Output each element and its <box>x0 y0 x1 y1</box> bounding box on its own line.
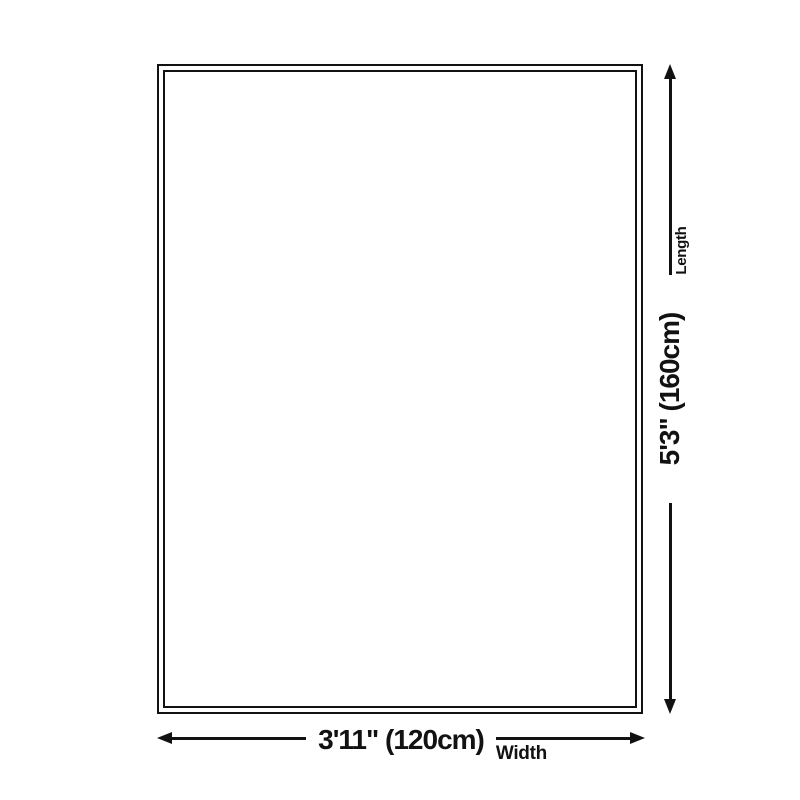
arrow-right-icon <box>630 732 645 744</box>
length-dimension-value: 5'3" (160cm) Length <box>655 275 685 504</box>
width-dimension-line <box>496 737 630 740</box>
length-dimension-text: 5'3" (160cm) <box>654 313 685 466</box>
length-dimension-indicator: 5'3" (160cm) Length <box>647 64 693 714</box>
width-axis-label: Width <box>496 744 547 763</box>
rug-dimension-diagram: 5'3" (160cm) Length 3'11" (120cm) Width <box>0 0 800 800</box>
width-dimension-line <box>172 737 306 740</box>
length-axis-label: Length <box>674 226 689 274</box>
width-dimension-value: 3'11" (120cm) Width <box>306 725 496 755</box>
length-dimension-line <box>669 503 672 699</box>
length-dimension-line <box>669 79 672 275</box>
rug-outline <box>157 64 643 714</box>
arrow-up-icon <box>664 64 676 79</box>
rug-inner-outline <box>163 70 637 708</box>
width-dimension-text: 3'11" (120cm) <box>318 724 484 755</box>
arrow-left-icon <box>157 732 172 744</box>
width-dimension-indicator: 3'11" (120cm) Width <box>157 715 645 761</box>
arrow-down-icon <box>664 699 676 714</box>
